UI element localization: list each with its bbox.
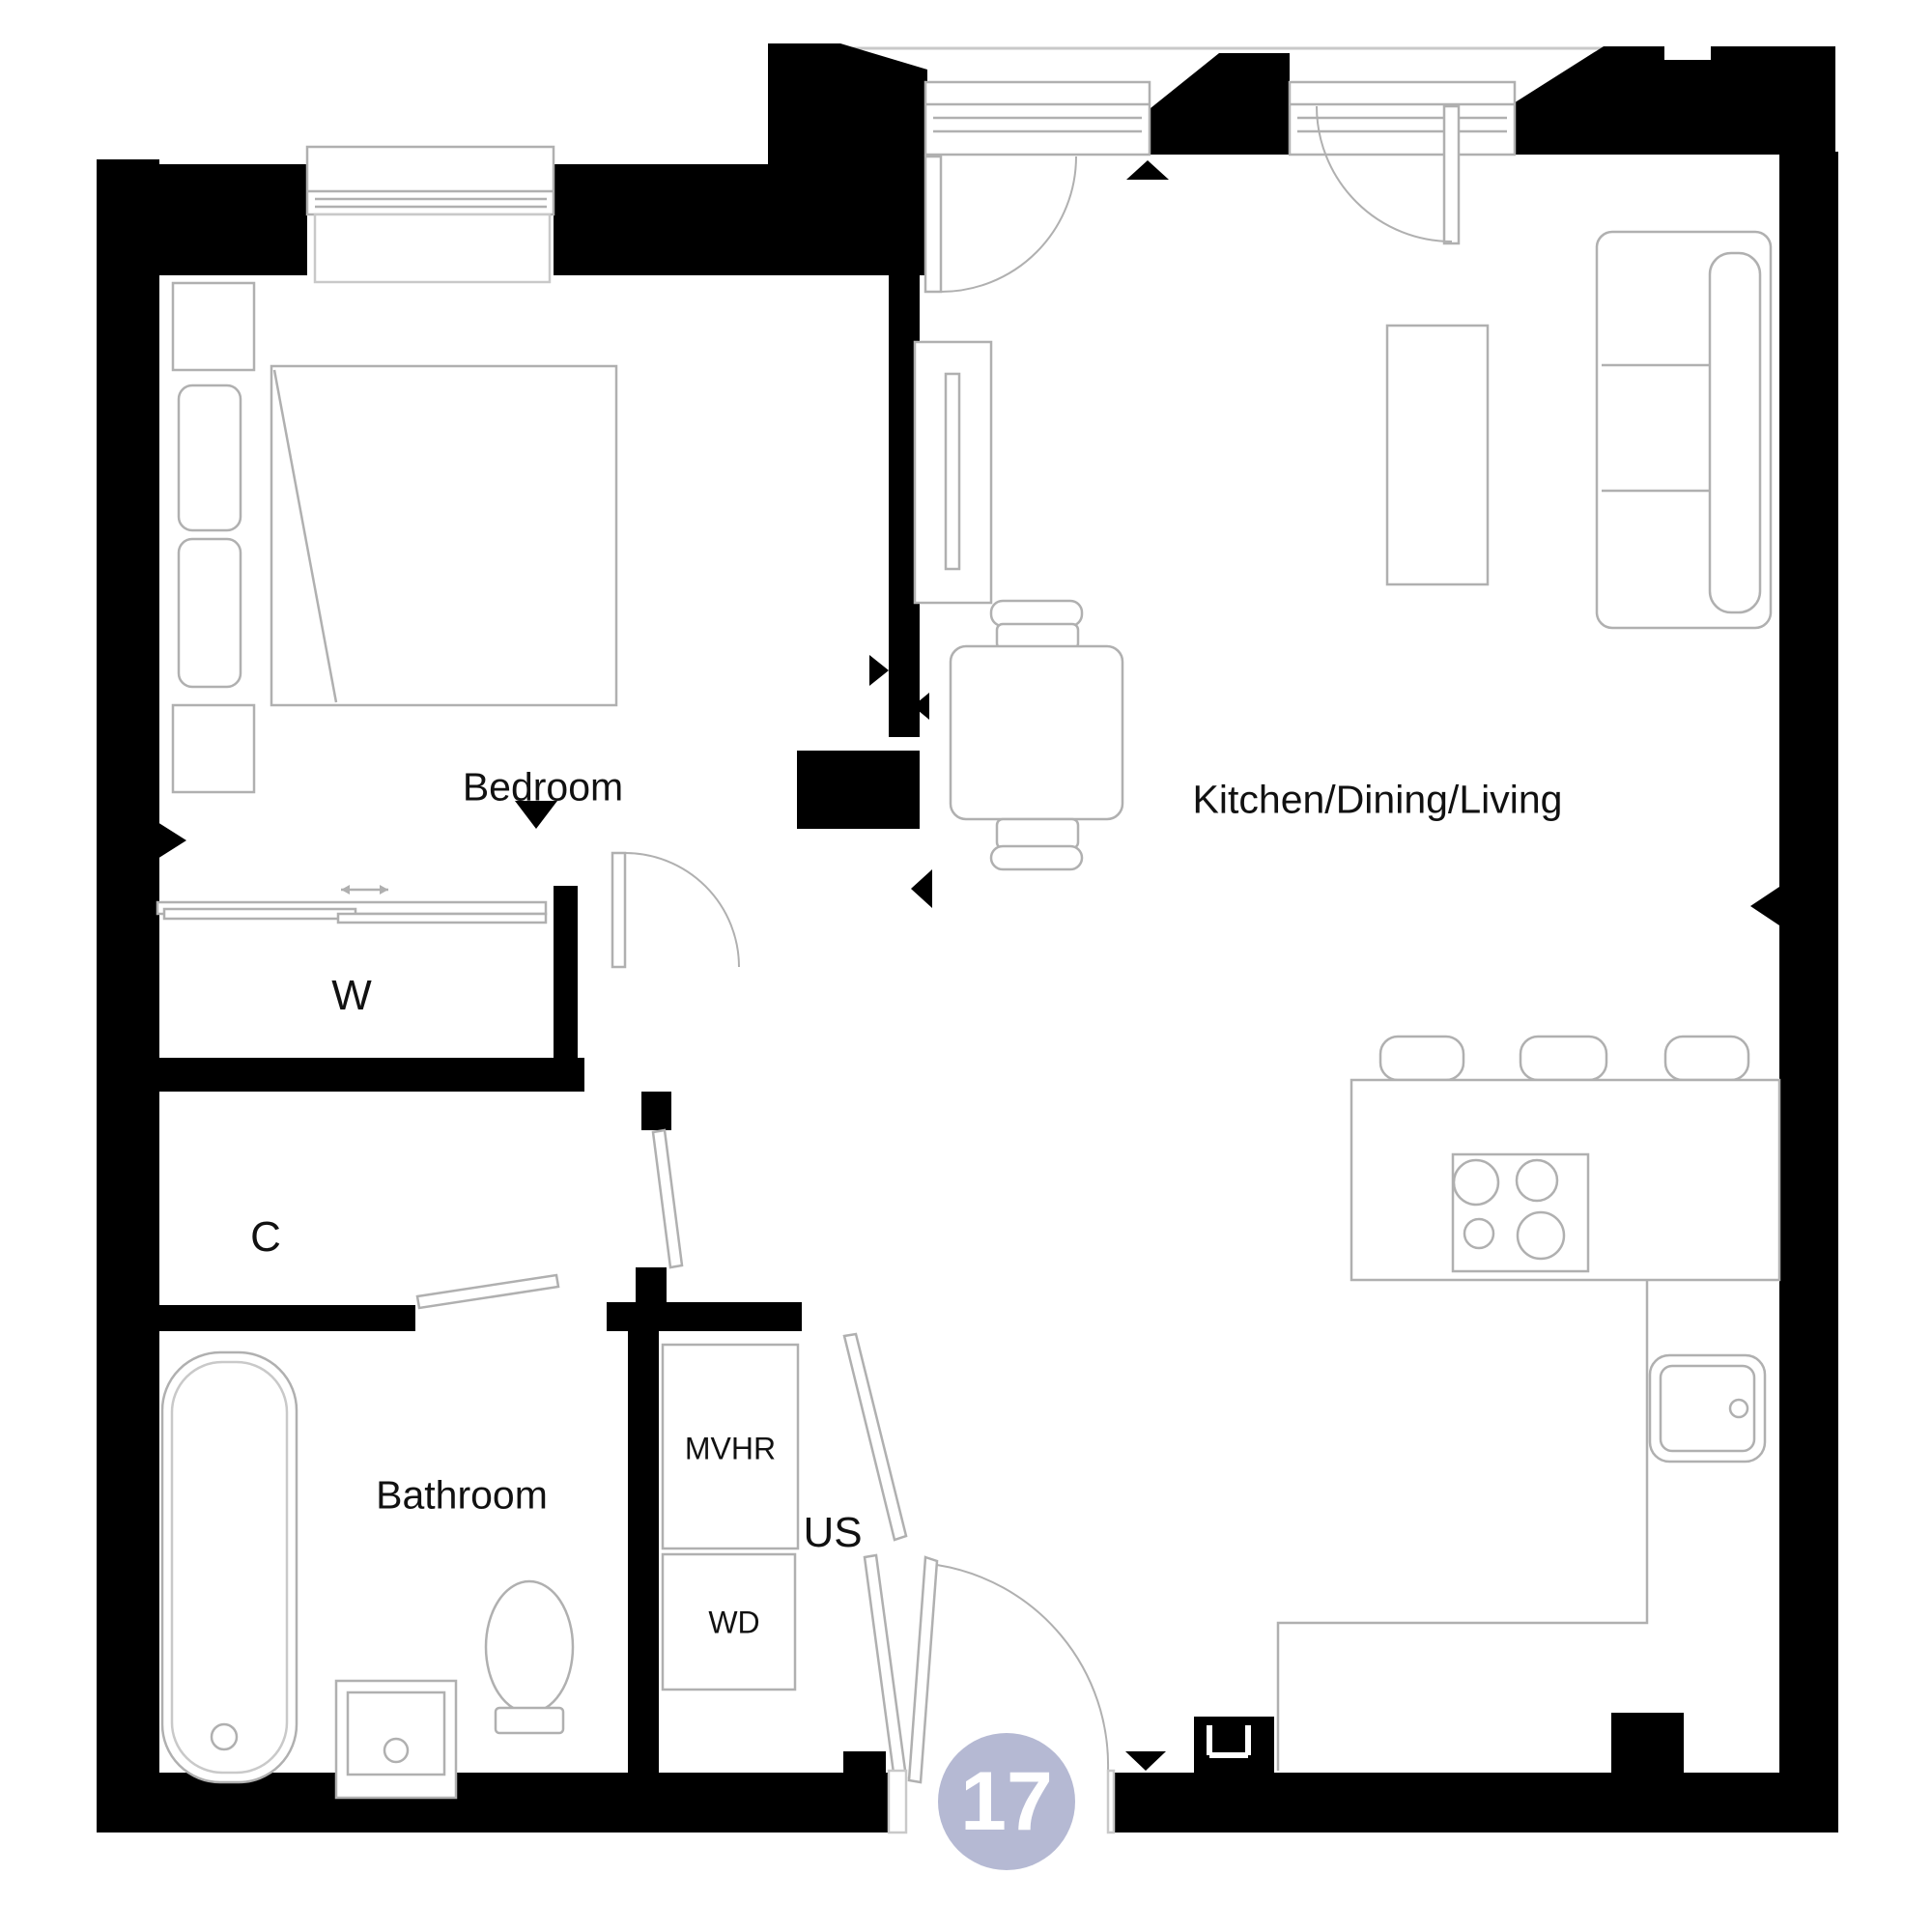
wall-bottom-stub-a [1194,1717,1274,1773]
label-bathroom: Bathroom [376,1473,548,1519]
wall-left [97,159,159,1813]
label-kitchen: Kitchen/Dining/Living [1193,778,1563,823]
wall-entrance-stub [843,1751,886,1773]
headboard-cushion-icon [179,539,241,687]
wall-bedroom-top-right [554,164,768,275]
sofa-icon [1597,232,1771,628]
wall-below-wardrobe [97,1058,584,1092]
wall-closet-door-stub-top [641,1092,671,1130]
wall-bathroom-top-right [607,1302,802,1331]
counter-edge-line [1278,1280,1647,1771]
dining-chair-icon [991,846,1082,869]
wall-bottom-stub-b [1611,1713,1684,1773]
headboard-cushion-icon [179,385,241,530]
triangle-left-icon [1750,887,1779,925]
sink-icon [1650,1355,1765,1462]
wall-top-center-pier [768,43,927,275]
triangle-right-icon [157,822,186,859]
triangle-right-icon [869,655,889,686]
bedside-table-bottom-icon [173,705,254,792]
kitchen-door-swing-icon [925,156,1076,292]
unit-number-badge: 17 [938,1733,1075,1870]
bedroom-door-swing-icon [612,853,739,967]
bedside-table-top-icon [173,283,254,370]
wall-bedroom-top-left [159,164,307,275]
kitchen-window-right-icon [1290,82,1515,155]
wall-bottom-right [1114,1773,1838,1833]
wall-wardrobe-pier [554,886,578,1074]
floor-plan: Bedroom Kitchen/Dining/Living W C Bathro… [0,0,1932,1932]
walls [97,43,1838,1833]
stool-icon [1665,1037,1748,1080]
unit-number: 17 [960,1754,1053,1850]
triangle-left-icon [911,869,932,908]
label-wd: WD [708,1605,759,1641]
toilet-icon [486,1581,573,1733]
triangle-up-icon [1126,160,1169,180]
label-closet: C [250,1213,281,1262]
bedroom-window-icon [307,147,554,282]
stool-icon [1380,1037,1463,1080]
dining-chair-icon [991,601,1082,626]
wall-right [1779,152,1838,1773]
sliding-wardrobe-icon [157,885,546,923]
dining-chair-icon [997,819,1078,848]
stool-icon [1520,1037,1606,1080]
radiator-icon [915,342,991,603]
floor-plan-drawing [0,0,1932,1932]
wall-top-mid-block [1151,53,1290,155]
wall-hall-block [797,751,920,829]
bed-icon [271,366,616,705]
bedroom-furniture [157,283,616,923]
console-unit-icon [1387,326,1488,584]
hob-icon [1453,1154,1588,1271]
wall-bathroom-top-left [159,1305,415,1331]
bathroom-door-icon [417,1275,558,1308]
dining-table-icon [951,646,1122,819]
kitchen-window-left-icon [925,82,1150,155]
wall-bathroom-utility-divider [628,1331,659,1773]
basin-icon [336,1681,456,1798]
closet-door-icon [653,1130,682,1267]
label-bedroom: Bedroom [463,765,623,810]
living-furniture [915,232,1779,1771]
label-mvhr: MVHR [685,1432,776,1467]
bathroom-fixtures [162,1345,798,1798]
kitchen-counter [1278,1037,1779,1771]
bath-icon [162,1352,297,1782]
label-wardrobe: W [331,972,372,1020]
triangle-down-icon [1125,1751,1166,1771]
wall-notch [1664,46,1711,60]
utility-door-bottom-icon [865,1555,906,1780]
wall-closet-door-stub-bottom [636,1267,667,1308]
wall-top-right-block [1509,46,1835,155]
label-us: US [803,1509,862,1557]
dining-set [951,601,1122,869]
